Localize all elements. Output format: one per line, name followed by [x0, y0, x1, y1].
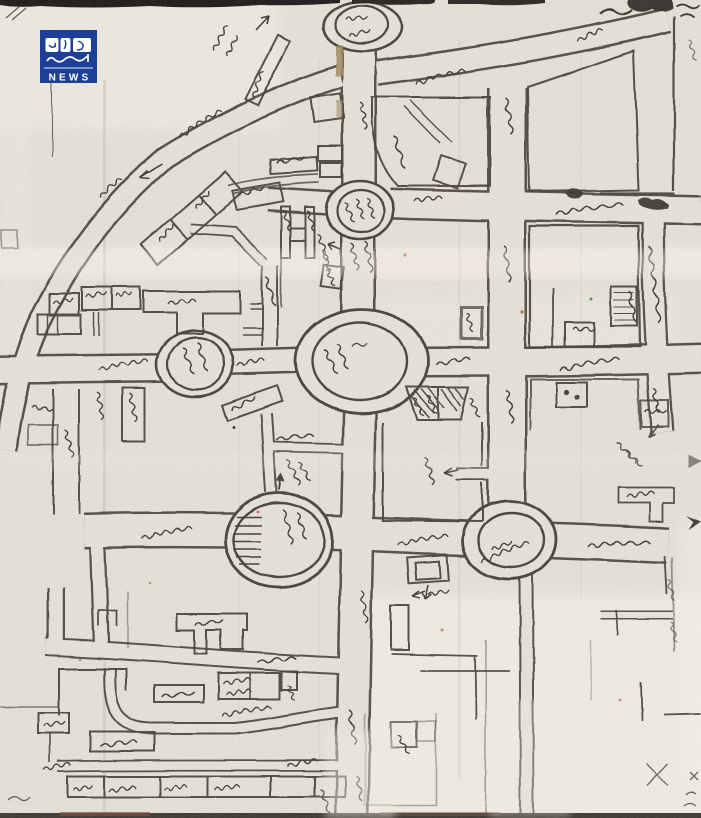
- svg-text:NEWS: NEWS: [49, 73, 92, 84]
